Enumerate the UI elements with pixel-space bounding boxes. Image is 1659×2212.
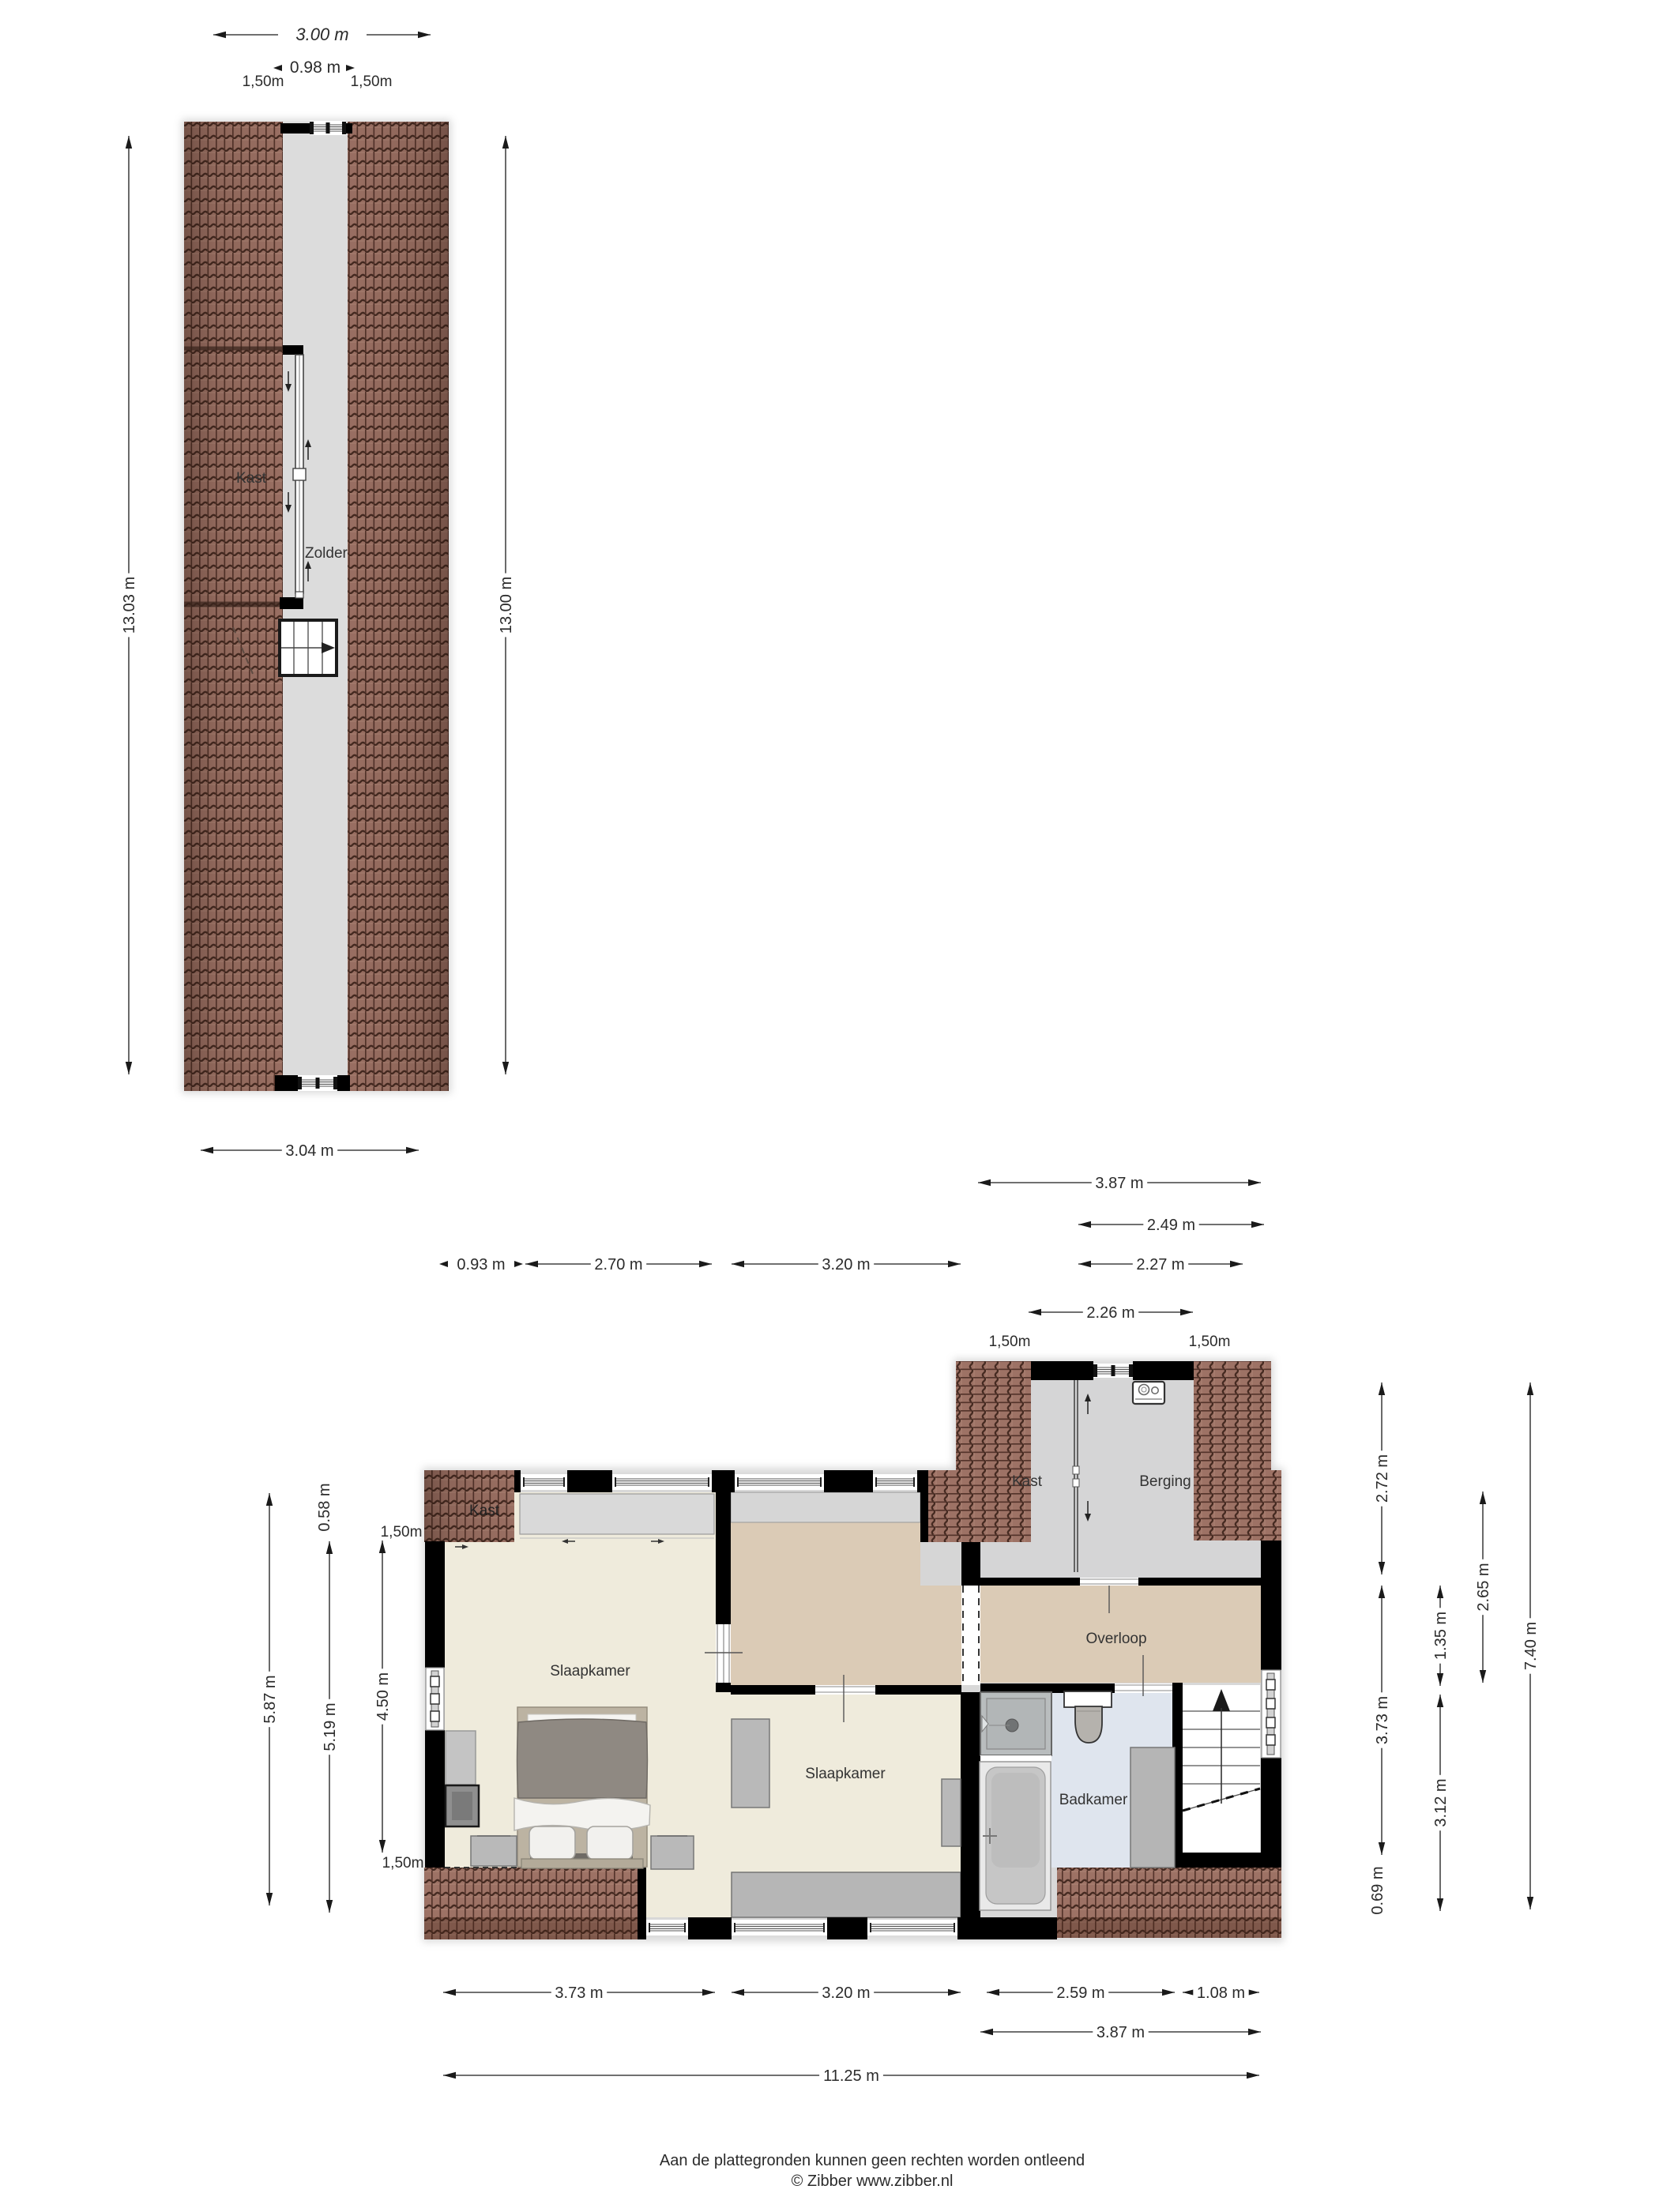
svg-text:Kast: Kast xyxy=(1012,1473,1043,1490)
svg-text:Badkamer: Badkamer xyxy=(1059,1792,1128,1808)
svg-text:0.98 m: 0.98 m xyxy=(290,58,340,77)
svg-text:Kast: Kast xyxy=(469,1503,500,1519)
svg-text:3.73 m: 3.73 m xyxy=(1374,1696,1391,1744)
svg-text:1,50m: 1,50m xyxy=(989,1334,1031,1350)
svg-text:1.35 m: 1.35 m xyxy=(1432,1612,1450,1660)
svg-text:Zolder: Zolder xyxy=(305,545,348,562)
svg-text:13.00 m: 13.00 m xyxy=(498,577,515,634)
svg-text:2.26 m: 2.26 m xyxy=(1086,1304,1134,1322)
svg-text:3.04 m: 3.04 m xyxy=(285,1142,333,1160)
svg-text:1,50m: 1,50m xyxy=(351,73,393,90)
svg-text:2.59 m: 2.59 m xyxy=(1056,1984,1104,2002)
svg-text:© Zibber www.zibber.nl: © Zibber www.zibber.nl xyxy=(792,2172,954,2190)
svg-text:2.49 m: 2.49 m xyxy=(1147,1217,1195,1234)
svg-text:2.72 m: 2.72 m xyxy=(1374,1454,1391,1503)
svg-text:Aan de plattegronden kunnen ge: Aan de plattegronden kunnen geen rechten… xyxy=(660,2152,1085,2169)
svg-text:Kast: Kast xyxy=(236,470,267,487)
svg-text:3.00 m: 3.00 m xyxy=(295,24,348,44)
svg-text:4.50 m: 4.50 m xyxy=(374,1672,392,1721)
svg-text:11.25 m: 11.25 m xyxy=(823,2067,879,2085)
svg-text:Berging: Berging xyxy=(1139,1473,1191,1490)
svg-text:0.69 m: 0.69 m xyxy=(1369,1866,1386,1914)
svg-text:Slaapkamer: Slaapkamer xyxy=(550,1663,630,1680)
svg-text:3.73 m: 3.73 m xyxy=(555,1984,603,2002)
svg-text:7.40 m: 7.40 m xyxy=(1522,1622,1540,1670)
svg-text:2.70 m: 2.70 m xyxy=(594,1256,642,1273)
svg-text:Overloop: Overloop xyxy=(1085,1631,1146,1647)
svg-text:13.03 m: 13.03 m xyxy=(121,577,138,634)
svg-text:3.20 m: 3.20 m xyxy=(822,1256,870,1273)
svg-text:0.58 m: 0.58 m xyxy=(316,1483,333,1531)
svg-text:5.19 m: 5.19 m xyxy=(322,1702,339,1751)
svg-text:0.93 m: 0.93 m xyxy=(457,1256,505,1273)
svg-text:1.08 m: 1.08 m xyxy=(1197,1984,1245,2002)
svg-text:2.65 m: 2.65 m xyxy=(1475,1563,1492,1611)
svg-text:1,50m: 1,50m xyxy=(381,1524,423,1540)
svg-text:5.87 m: 5.87 m xyxy=(261,1675,279,1723)
svg-text:1,50m: 1,50m xyxy=(243,73,284,90)
svg-text:Slaapkamer: Slaapkamer xyxy=(805,1766,886,1782)
svg-text:3.87 m: 3.87 m xyxy=(1095,1175,1143,1192)
svg-text:3.12 m: 3.12 m xyxy=(1432,1778,1450,1826)
svg-text:2.27 m: 2.27 m xyxy=(1136,1256,1184,1273)
svg-text:3.87 m: 3.87 m xyxy=(1097,2024,1145,2041)
svg-text:3.20 m: 3.20 m xyxy=(822,1984,870,2002)
svg-text:1,50m: 1,50m xyxy=(382,1855,424,1872)
svg-text:1,50m: 1,50m xyxy=(1189,1334,1231,1350)
